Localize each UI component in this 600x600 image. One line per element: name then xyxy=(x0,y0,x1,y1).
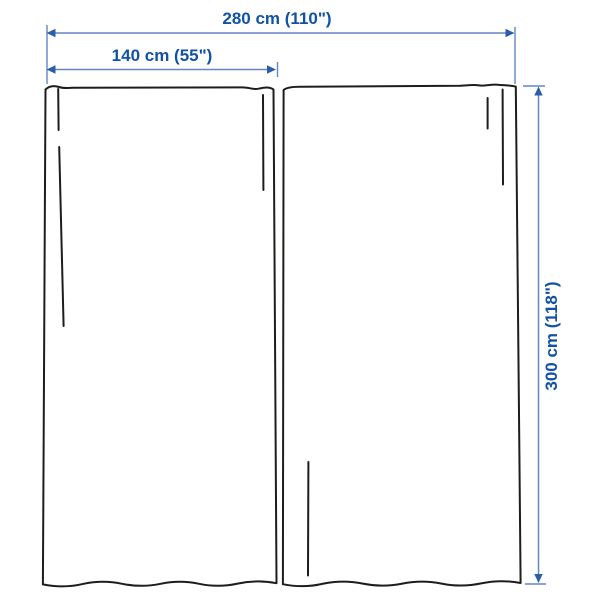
left-panel-outline xyxy=(43,86,277,586)
arrow-right-icon xyxy=(267,65,276,73)
left-curtain-panel xyxy=(43,86,277,586)
arrow-left-icon xyxy=(47,65,56,73)
arrow-up-icon xyxy=(534,87,542,96)
arrow-left-icon xyxy=(47,29,56,37)
right-curtain-panel xyxy=(283,85,521,587)
height-label: 300 cm (118") xyxy=(542,281,561,390)
left-panel-fold-line-long xyxy=(59,147,63,326)
panel-width-label: 140 cm (55") xyxy=(112,46,213,65)
right-panel-outline xyxy=(283,85,521,587)
panel-width-dimension: 140 cm (55") xyxy=(47,46,278,77)
arrow-right-icon xyxy=(506,29,515,37)
height-dimension: 300 cm (118") xyxy=(523,86,561,584)
arrow-down-icon xyxy=(534,574,542,583)
diagram-svg: 280 cm (110") 140 cm (55") 300 cm (118") xyxy=(0,0,600,600)
curtain-dimension-diagram: 280 cm (110") 140 cm (55") 300 cm (118") xyxy=(0,0,600,600)
total-width-label: 280 cm (110") xyxy=(222,9,331,28)
